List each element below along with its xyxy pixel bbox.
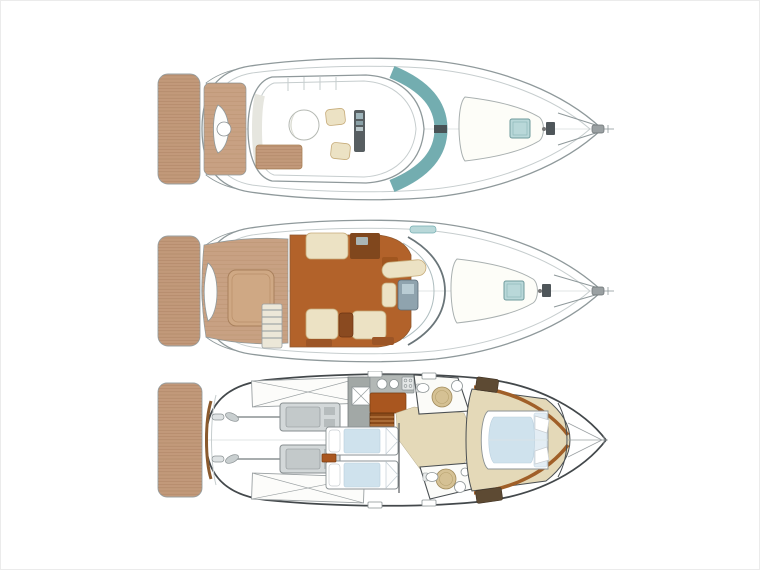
fridge	[352, 387, 370, 405]
galley-sink-1	[377, 379, 387, 389]
deck-hatch	[510, 119, 530, 138]
round-table	[289, 110, 319, 140]
twin-bed-starboard	[326, 461, 398, 489]
shower-fwd	[436, 469, 456, 489]
flybridge-platform	[248, 72, 447, 186]
sunpad	[256, 145, 302, 169]
anchor	[592, 287, 604, 295]
island-bed	[481, 411, 549, 469]
salon	[290, 233, 427, 347]
flybridge-ladder	[262, 304, 282, 348]
sink-fwd	[455, 482, 466, 493]
deck-hatch	[504, 281, 524, 300]
windshield-centerpost	[434, 125, 447, 133]
yacht-three-deck-plan	[0, 0, 760, 570]
wardrobe	[475, 377, 499, 393]
aft-cockpit	[204, 83, 246, 175]
galley-counter	[370, 393, 406, 413]
sideboard	[350, 233, 380, 259]
helm-seat	[382, 283, 396, 307]
sink-aft	[452, 381, 463, 392]
nightstand	[322, 454, 336, 462]
swim-platform	[158, 74, 200, 184]
aft-settee	[306, 233, 348, 259]
helm-console	[398, 280, 418, 310]
rudder-starboard	[212, 456, 224, 462]
galley-sink-2	[390, 380, 399, 389]
main-deck-plan	[156, 214, 621, 368]
cockpit-table	[217, 122, 231, 136]
stove	[402, 377, 414, 390]
lower-deck-plan	[156, 371, 621, 509]
rudder-port	[212, 414, 224, 420]
owner-cabin	[466, 377, 570, 504]
salon-table	[339, 313, 353, 337]
swim-platform	[158, 383, 202, 497]
toilet-fwd	[423, 473, 438, 482]
dinette-bench	[381, 259, 426, 279]
aft-cockpit	[202, 238, 288, 348]
shower-aft	[432, 387, 452, 407]
fuel-tank-aft	[252, 377, 365, 407]
helm-console	[354, 110, 365, 152]
toilet-aft	[416, 384, 429, 393]
anchor	[592, 125, 604, 133]
swim-platform	[158, 236, 200, 346]
twin-bed-port	[326, 427, 398, 455]
roof-vent	[410, 226, 436, 233]
flybridge-deck-plan	[156, 55, 621, 203]
